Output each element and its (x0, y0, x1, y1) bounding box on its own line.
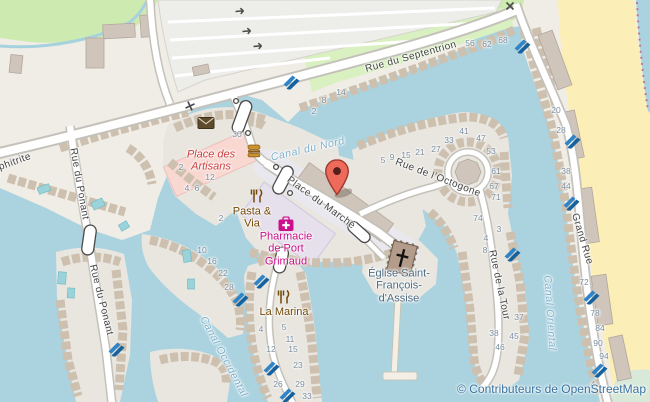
house-number: 15 (288, 345, 297, 355)
house-number: 6 (195, 184, 200, 194)
street-label: Rue du Ponant (87, 263, 115, 336)
slipway-icon (109, 342, 126, 357)
house-number: 68 (498, 36, 507, 46)
slipway-icon (233, 292, 250, 307)
map-marker[interactable] (322, 159, 352, 199)
slipway-icon (284, 75, 301, 90)
house-number: 38 (561, 167, 570, 177)
house-number: 44 (561, 182, 570, 192)
house-number: 45 (509, 332, 518, 342)
house-number: 2 (312, 107, 317, 117)
house-number: 15 (401, 151, 410, 161)
restaurant-icon (249, 189, 264, 204)
house-number: 3 (497, 225, 502, 235)
slipway-icon (254, 274, 271, 289)
house-number: 61 (491, 167, 500, 177)
house-number: 72 (579, 278, 588, 288)
house-number: 23 (293, 361, 302, 371)
water-label: Canal Oriental (541, 275, 558, 351)
one-way-arrow-icon (241, 26, 255, 36)
pharmacy-icon (278, 217, 295, 232)
house-number: 26 (273, 380, 282, 390)
house-number: 2 (219, 214, 224, 224)
house-number: 12 (266, 345, 275, 355)
poi-label: Église Saint- François- d'Assise (368, 268, 430, 305)
house-number: 74 (473, 214, 482, 224)
house-number: 28 (556, 126, 565, 136)
street-label: Rue de l’Octogone (394, 157, 482, 200)
slipway-icon (505, 247, 522, 262)
slipway-icon (565, 134, 582, 149)
house-number: 12 (205, 173, 214, 183)
house-number: 22 (218, 269, 227, 279)
slipway-icon (515, 39, 532, 54)
house-number: 10 (197, 246, 206, 256)
street-label: phitrite (0, 151, 33, 173)
one-way-arrow-icon (234, 6, 248, 16)
house-number: 38 (489, 329, 498, 339)
slipway-icon (564, 196, 581, 211)
restaurant-icon (276, 290, 291, 305)
house-number: 4 (259, 325, 264, 335)
poi-label: Pasta & Via (233, 206, 272, 231)
slipway-icon (280, 388, 297, 402)
house-number: 62 (482, 40, 491, 50)
poi-label: Place des Artisans (187, 149, 235, 174)
house-number: 27 (431, 145, 440, 155)
house-number: 56 (465, 39, 474, 49)
house-number: 67 (489, 182, 498, 192)
house-number: 9 (390, 153, 395, 163)
house-number: 47 (476, 134, 485, 144)
house-number: 78 (590, 309, 599, 319)
house-number: 33 (444, 136, 453, 146)
street-label: Rue de la Tour (486, 249, 512, 321)
house-number: 33 (302, 392, 311, 402)
street-label: Rue du Ponant (67, 147, 91, 220)
house-number: 90 (593, 339, 602, 349)
water-label: Canal Occidental (197, 315, 249, 400)
gate-icon (184, 100, 197, 113)
map-attribution[interactable]: © Contributeurs de OpenStreetMap (457, 382, 646, 396)
house-number: 53 (486, 147, 495, 157)
house-number: 84 (595, 324, 604, 334)
house-number: 8 (322, 96, 327, 106)
house-number: 30 (232, 130, 241, 140)
house-number: 11 (286, 335, 295, 345)
house-number: 21 (415, 148, 424, 158)
house-number: 20 (551, 106, 560, 116)
slipway-icon (592, 363, 609, 378)
house-number: 71 (491, 193, 500, 203)
map-labels-layer: Rue du SeptentrionGrand RueRue du Ponant… (0, 0, 650, 402)
house-number: 4 (484, 234, 489, 244)
slipway-icon (584, 290, 601, 305)
house-number: 94 (599, 352, 608, 362)
one-way-arrow-icon (252, 41, 266, 51)
fast-food-icon (247, 145, 261, 158)
poi-label: La Marina (260, 306, 309, 318)
poi-label: Pharmacie de Port Grimaud (260, 231, 313, 268)
house-number: 5 (381, 156, 386, 166)
house-number: 16 (207, 257, 216, 267)
house-number: 14 (336, 88, 345, 98)
house-number: 29 (295, 380, 304, 390)
house-number: 4 (185, 184, 190, 194)
gate-icon (505, 1, 515, 11)
house-number: 8 (483, 246, 488, 256)
street-label: Grand Rue (569, 212, 595, 266)
map-canvas[interactable]: Rue du SeptentrionGrand RueRue du Ponant… (0, 0, 650, 402)
house-number: 37 (514, 313, 523, 323)
slipway-icon (264, 361, 281, 376)
house-number: 41 (459, 127, 468, 137)
house-number: 28 (224, 283, 233, 293)
house-number: 5 (282, 323, 287, 333)
house-number: 2 (179, 163, 184, 173)
house-number: 46 (495, 343, 504, 353)
street-label: Rue du Septentrion (364, 39, 458, 75)
post-icon (198, 117, 215, 129)
